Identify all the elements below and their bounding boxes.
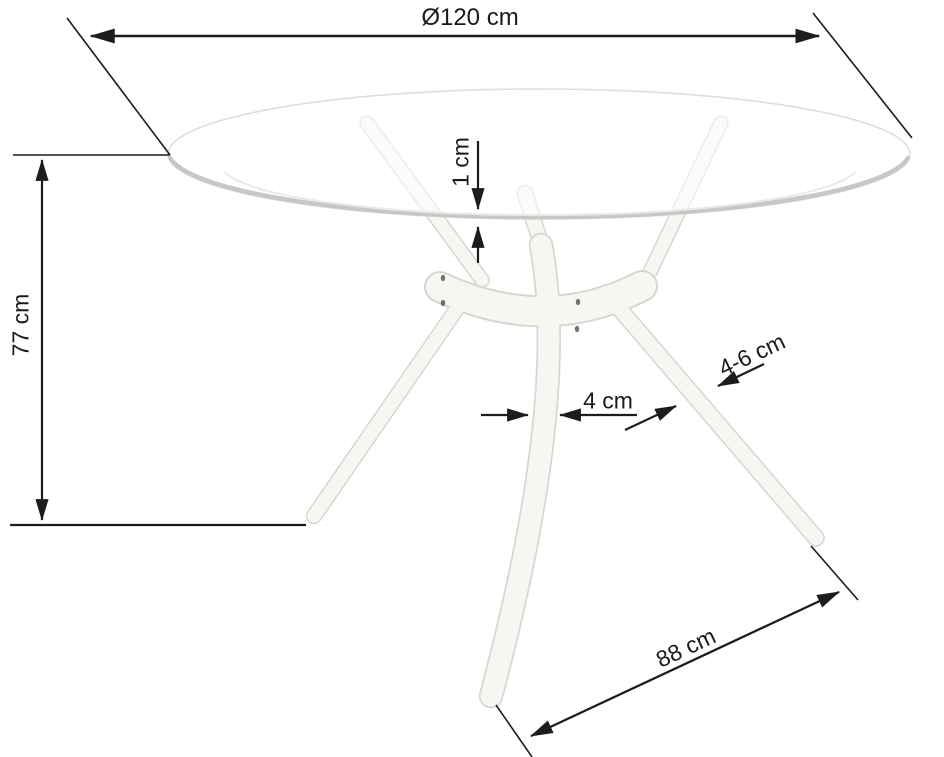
glass-top: [168, 89, 910, 219]
dim-diameter-ext-left: [67, 18, 170, 155]
leg-front-left: [314, 297, 465, 516]
dim-leg-length-ext-left: [496, 705, 532, 757]
table-drawing-svg: [0, 0, 944, 757]
dim-leg-length-line: [531, 592, 839, 736]
dim-label-leg-width: 4 cm: [583, 390, 633, 413]
dim-label-glass-thickness: 1 cm: [450, 137, 473, 187]
dim-label-diameter: Ø120 cm: [421, 6, 518, 30]
diagram-canvas: Ø120 cm 77 cm 1 cm 4 cm 4-6 cm 88 cm: [0, 0, 944, 757]
leg-rear-right: [606, 293, 816, 538]
table-base-lower-legs: [314, 245, 816, 696]
dim-label-height: 77 cm: [10, 294, 33, 357]
dim-leg-length-ext-right: [811, 546, 858, 600]
